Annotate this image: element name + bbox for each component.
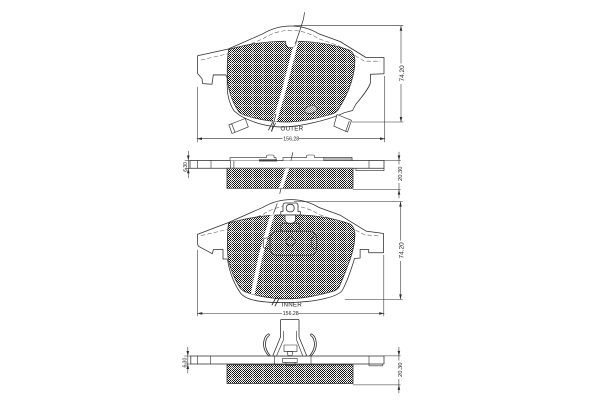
svg-text:20.30: 20.30 <box>398 362 404 377</box>
svg-text:20.30: 20.30 <box>398 166 404 181</box>
svg-text:INNER: INNER <box>282 301 303 308</box>
svg-text:156.28: 156.28 <box>283 311 299 317</box>
svg-text:74.20: 74.20 <box>398 242 405 259</box>
svg-text:6.30: 6.30 <box>182 358 188 368</box>
svg-text:156.28: 156.28 <box>283 137 299 143</box>
svg-text:6.30: 6.30 <box>183 162 189 172</box>
svg-text:74.20: 74.20 <box>399 65 406 82</box>
svg-text:OUTER: OUTER <box>281 126 304 133</box>
